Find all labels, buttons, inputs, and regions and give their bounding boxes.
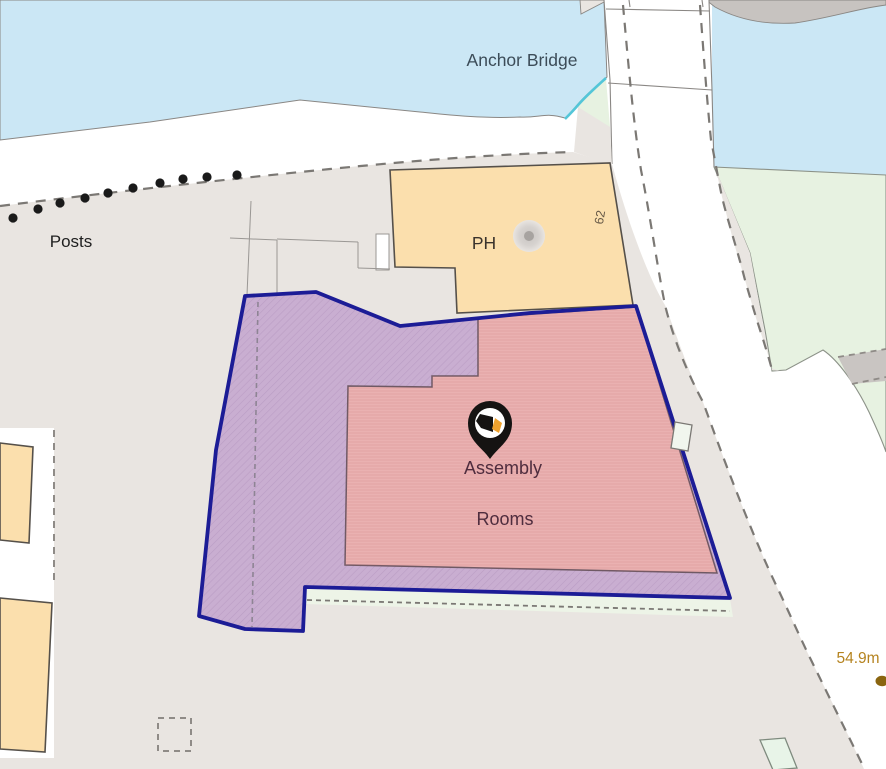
post-dot — [55, 198, 64, 207]
building-number-label: 62 — [592, 209, 608, 225]
river-water-east — [712, 0, 886, 176]
post-dot — [80, 193, 89, 202]
map-canvas[interactable]: Anchor Bridge Posts PH 62 Assembly Rooms… — [0, 0, 886, 769]
post-dot — [202, 172, 211, 181]
bridge-label: Anchor Bridge — [467, 50, 578, 70]
spot-height-label: 54.9m — [836, 650, 879, 667]
pub-label: PH — [472, 233, 496, 253]
post-dot — [8, 213, 17, 222]
outbuilding-northwest — [0, 443, 33, 543]
porch-notch — [671, 422, 692, 451]
post-dot — [232, 170, 241, 179]
posts-label: Posts — [50, 232, 93, 251]
post-dot — [128, 183, 137, 192]
post-dot — [33, 204, 42, 213]
outbuilding-southwest — [0, 598, 52, 752]
post-dot — [178, 174, 187, 183]
spot-feature-dot — [524, 231, 534, 241]
post-dot — [103, 188, 112, 197]
post-dot — [155, 178, 164, 187]
property-label-line2: Rooms — [476, 509, 533, 529]
small-outbuilding — [376, 234, 389, 270]
property-label-line1: Assembly — [464, 458, 542, 478]
